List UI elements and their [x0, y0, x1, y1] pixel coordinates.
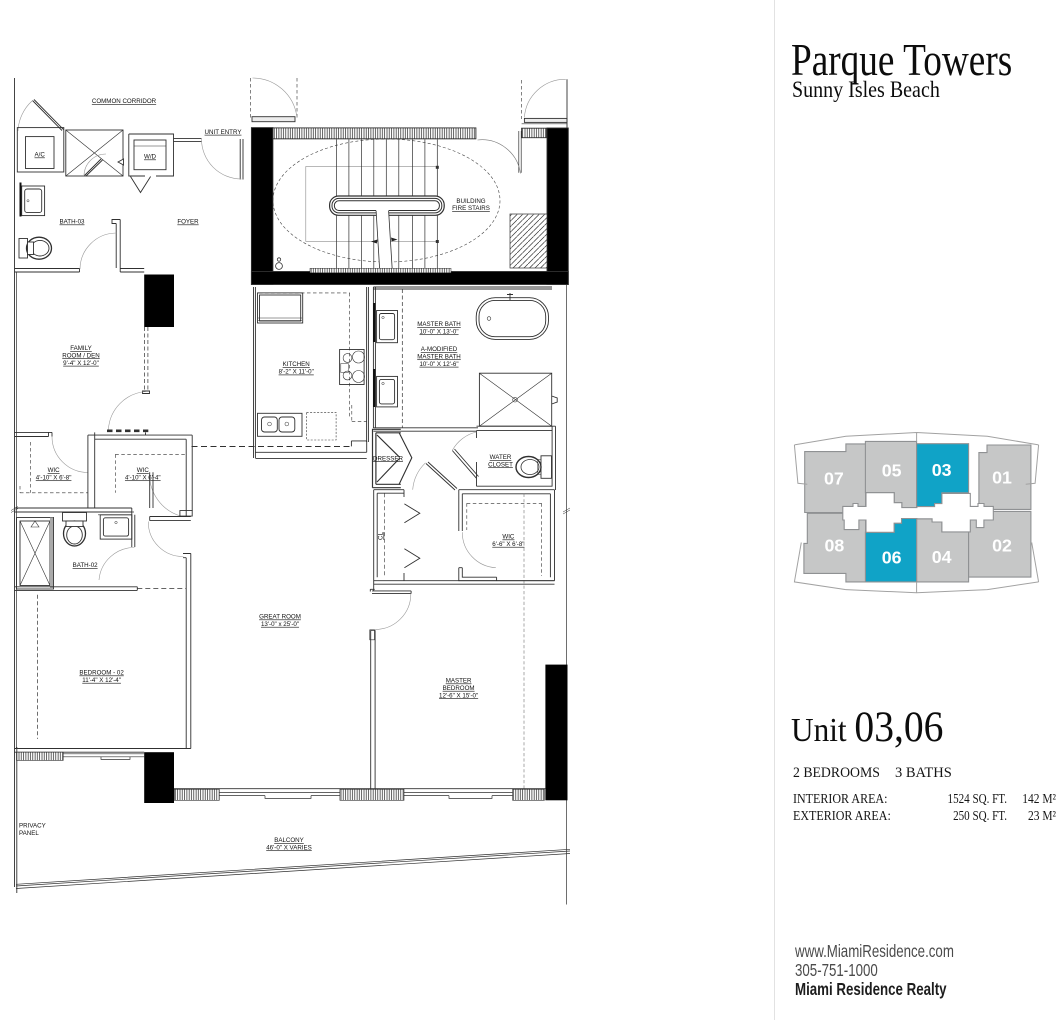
svg-text:03: 03 [932, 460, 952, 480]
svg-text:ROOM / DEN: ROOM / DEN [62, 352, 99, 359]
svg-text:KITCHEN: KITCHEN [283, 361, 310, 368]
svg-text:01: 01 [992, 467, 1012, 487]
svg-text:MASTER BATH: MASTER BATH [417, 353, 461, 360]
svg-text:10'-0" X 13'-0": 10'-0" X 13'-0" [419, 328, 458, 335]
svg-text:UNIT ENTRY: UNIT ENTRY [205, 129, 242, 136]
svg-text:8'-2" X 11'-0": 8'-2" X 11'-0" [279, 369, 314, 376]
svg-text:FIRE STAIRS: FIRE STAIRS [452, 205, 490, 212]
svg-text:PANEL: PANEL [19, 830, 39, 837]
svg-text:GREAT ROOM: GREAT ROOM [259, 614, 301, 621]
svg-text:08: 08 [825, 535, 845, 555]
svg-text:BATH-03: BATH-03 [60, 219, 86, 226]
svg-text:05: 05 [882, 460, 902, 480]
svg-text:10'-0" X 12'-6": 10'-0" X 12'-6" [419, 361, 458, 368]
svg-text:13'-0" x 25'-0": 13'-0" x 25'-0" [261, 621, 299, 628]
svg-text:WIC: WIC [502, 534, 515, 541]
svg-text:A-MODIFIED: A-MODIFIED [421, 346, 458, 353]
svg-text:BUILDING: BUILDING [456, 198, 485, 205]
svg-text:WATER: WATER [490, 454, 512, 461]
svg-text:07: 07 [824, 468, 844, 488]
svg-text:CLOSET: CLOSET [488, 461, 513, 468]
svg-text:MASTER BATH: MASTER BATH [417, 321, 461, 328]
svg-text:FAMILY: FAMILY [70, 345, 92, 352]
svg-text:11'-4" X 12'-4": 11'-4" X 12'-4" [82, 677, 121, 684]
svg-text:02: 02 [992, 535, 1012, 555]
svg-text:BATH-02: BATH-02 [73, 562, 99, 569]
svg-text:06: 06 [882, 547, 902, 567]
svg-text:BEDROOM: BEDROOM [443, 685, 475, 692]
svg-text:4'-10" X 6'-4": 4'-10" X 6'-4" [125, 474, 161, 481]
svg-text:46'-0" X VARIES: 46'-0" X VARIES [266, 844, 312, 851]
svg-text:A/C: A/C [35, 152, 46, 159]
svg-text:W/D: W/D [144, 154, 157, 161]
svg-text:BALCONY: BALCONY [274, 837, 304, 844]
svg-text:9'-4" X 12'-0": 9'-4" X 12'-0" [63, 360, 99, 367]
svg-text:PRIVACY: PRIVACY [19, 823, 46, 830]
svg-text:6'-6" X 6'-8": 6'-6" X 6'-8" [492, 541, 524, 548]
svg-text:CL: CL [378, 531, 385, 539]
svg-text:BEDROOM - 02: BEDROOM - 02 [79, 670, 124, 677]
svg-text:4'-10" X 6'-8": 4'-10" X 6'-8" [36, 474, 72, 481]
svg-text:FOYER: FOYER [177, 219, 199, 226]
svg-text:04: 04 [932, 547, 952, 567]
svg-text:COMMON CORRIDOR: COMMON CORRIDOR [92, 98, 157, 105]
svg-text:12'-6" X 15'-0": 12'-6" X 15'-0" [439, 692, 478, 699]
svg-text:MASTER: MASTER [446, 678, 472, 685]
svg-text:WIC: WIC [48, 467, 61, 474]
svg-text:WIC: WIC [137, 467, 150, 474]
